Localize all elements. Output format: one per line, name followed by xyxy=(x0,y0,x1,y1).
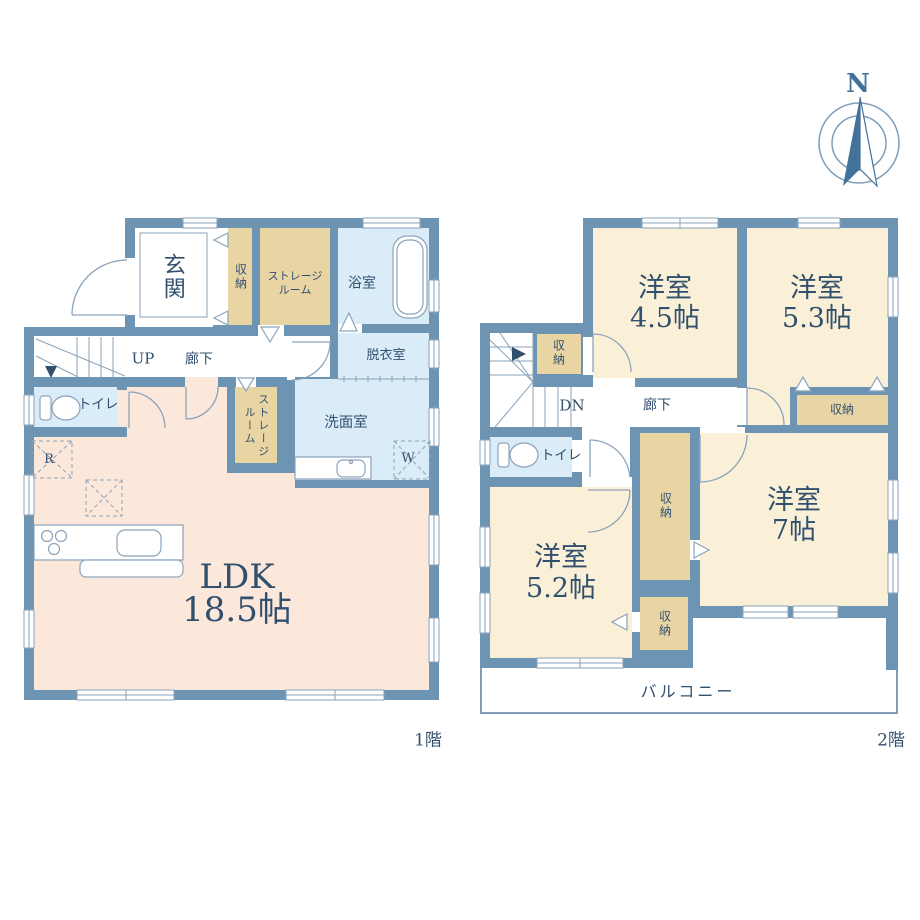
f2-room7-size: 7帖 xyxy=(772,514,816,548)
f2-balcony-label: バルコニー xyxy=(641,682,736,702)
f2-wall-stub xyxy=(886,618,898,670)
toilet-icon-f2 xyxy=(498,443,538,467)
f2-hall-label: 廊下 xyxy=(643,397,671,415)
f1-storage-mid-line1: ストレージ xyxy=(256,394,270,459)
f2-closet-stair-label: 収納 xyxy=(551,339,566,367)
f1-storage-mid-label: ストレージ ルーム xyxy=(242,394,270,459)
f1-fridge-label: R xyxy=(44,452,54,468)
f1-storage-top-line1: ストレージ xyxy=(268,269,323,283)
f1-hall-label: 廊下 xyxy=(185,351,213,369)
f2-room7-label: 洋室 xyxy=(767,484,821,518)
f1-toilet-label: トイレ xyxy=(78,397,119,414)
f2-room53-label: 洋室 xyxy=(790,272,844,306)
f2-hall xyxy=(490,387,737,427)
f2-toilet-label: トイレ xyxy=(541,448,582,465)
f1-genkan-label: 玄関 xyxy=(158,253,186,301)
f2-room52-label: 洋室 xyxy=(534,541,588,575)
bathtub-icon xyxy=(393,236,427,318)
f2-closet-mid-label: 収納 xyxy=(658,492,673,520)
vanity-icon xyxy=(295,457,371,479)
floorplan-canvas: 玄関 収納 ストレージ ルーム 浴室 脱衣室 UP 廊下 トイレ ストレージ ル… xyxy=(0,0,920,920)
compass-needle-dark xyxy=(843,97,860,186)
toilet-icon-f1 xyxy=(40,396,80,420)
f2-closet-53-label: 収納 xyxy=(830,403,854,418)
compass-north-label: N xyxy=(846,68,870,101)
f2-dn-label: DN xyxy=(559,397,584,416)
f1-washroom-label: 洗面室 xyxy=(324,414,368,432)
f1-storage-top-label: ストレージ ルーム xyxy=(268,269,323,297)
f1-ldk-room-arm3 xyxy=(225,473,295,488)
f1-dressing-label: 脱衣室 xyxy=(366,348,405,364)
f1-ldk-room-arm xyxy=(127,387,227,488)
f1-caption: 1階 xyxy=(414,730,442,751)
f2-room45-size: 4.5帖 xyxy=(630,302,700,336)
f1-washer-label: W xyxy=(401,451,414,467)
compass-needle-light xyxy=(860,97,877,186)
f1-storage-top-line2: ルーム xyxy=(268,283,323,297)
f2-closet-low-label: 収納 xyxy=(657,610,672,638)
compass-icon xyxy=(819,97,899,186)
f2-room53-size: 5.3帖 xyxy=(782,302,852,336)
f2-room45-label: 洋室 xyxy=(638,272,692,306)
f1-closet-label: 収納 xyxy=(233,263,248,291)
f2-caption: 2階 xyxy=(877,730,905,751)
f1-up-label: UP xyxy=(132,350,155,369)
f1-bath-label: 浴室 xyxy=(348,275,376,293)
f1-ldk-size-label: 18.5帖 xyxy=(182,589,292,632)
f1-storage-mid-line2: ルーム xyxy=(242,394,256,459)
f2-room52-size: 5.2帖 xyxy=(526,572,596,606)
floorplan-drawing xyxy=(0,0,920,920)
